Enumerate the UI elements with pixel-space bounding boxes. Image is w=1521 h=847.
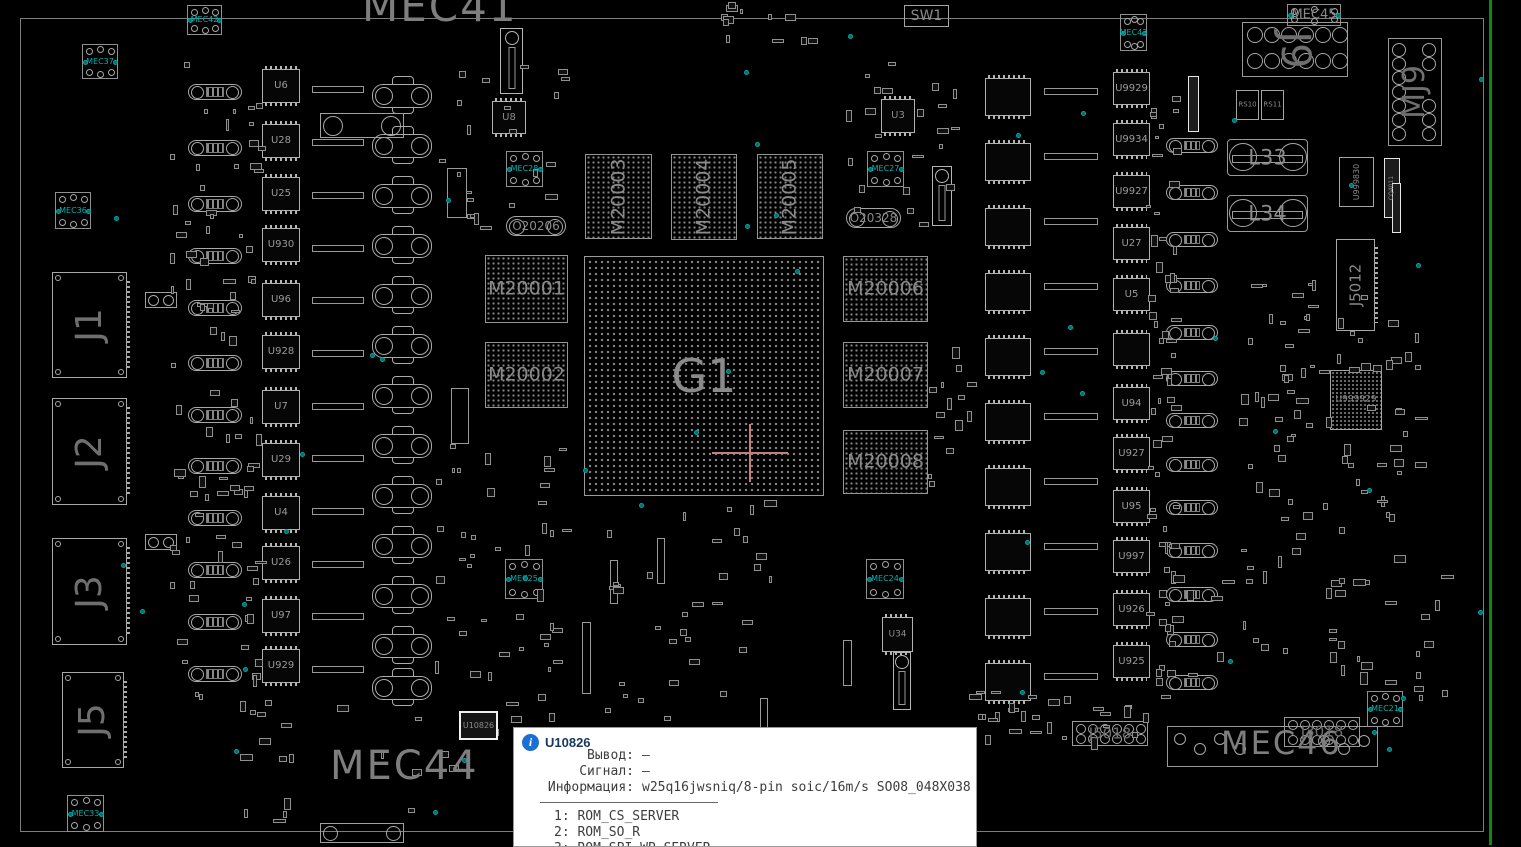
component-power[interactable] bbox=[372, 226, 432, 264]
passive[interactable] bbox=[1253, 638, 1259, 643]
passive[interactable] bbox=[1153, 440, 1161, 448]
passive[interactable] bbox=[1154, 321, 1158, 328]
passive[interactable] bbox=[740, 9, 743, 14]
passive[interactable] bbox=[487, 488, 495, 497]
passive[interactable] bbox=[1155, 136, 1159, 139]
passive[interactable] bbox=[1303, 512, 1313, 519]
passive[interactable] bbox=[1269, 489, 1280, 497]
component-G1[interactable]: G1 bbox=[584, 256, 824, 496]
component-U929[interactable]: U929 bbox=[262, 649, 300, 683]
component-bar[interactable] bbox=[1044, 348, 1098, 355]
passive[interactable] bbox=[221, 332, 225, 342]
component-power[interactable] bbox=[372, 276, 432, 314]
passive[interactable] bbox=[1047, 722, 1052, 734]
passive[interactable] bbox=[1173, 246, 1177, 255]
component-L33[interactable]: L33 bbox=[1227, 139, 1308, 176]
passive[interactable] bbox=[249, 140, 259, 147]
component-bar[interactable] bbox=[1044, 608, 1098, 615]
passive[interactable] bbox=[452, 468, 455, 473]
component-vertical[interactable] bbox=[582, 622, 591, 694]
passive[interactable] bbox=[265, 700, 272, 706]
passive[interactable] bbox=[1275, 417, 1283, 422]
component-J2[interactable]: J2 bbox=[52, 398, 127, 505]
passive[interactable] bbox=[281, 723, 292, 728]
component-U7[interactable]: U7 bbox=[262, 390, 300, 424]
component-U997[interactable]: U997 bbox=[1113, 540, 1150, 573]
passive[interactable] bbox=[210, 390, 219, 396]
passive[interactable] bbox=[253, 578, 258, 585]
passive[interactable] bbox=[250, 710, 256, 715]
passive[interactable] bbox=[253, 675, 257, 687]
passive[interactable] bbox=[785, 14, 796, 21]
passive[interactable] bbox=[1211, 596, 1223, 602]
passive[interactable] bbox=[1361, 363, 1371, 371]
component-RS10[interactable]: RS10 bbox=[1236, 90, 1259, 120]
passive[interactable] bbox=[199, 476, 206, 489]
passive[interactable] bbox=[1291, 434, 1296, 437]
passive[interactable] bbox=[190, 581, 195, 589]
component-bar[interactable] bbox=[312, 192, 364, 199]
passive[interactable] bbox=[1261, 397, 1266, 407]
passive[interactable] bbox=[436, 576, 445, 584]
passive[interactable] bbox=[917, 109, 924, 117]
passive[interactable] bbox=[726, 35, 730, 43]
passive[interactable] bbox=[1093, 707, 1105, 711]
passive[interactable] bbox=[171, 363, 175, 368]
passive[interactable] bbox=[969, 694, 982, 700]
passive[interactable] bbox=[218, 551, 222, 563]
passive[interactable] bbox=[247, 614, 254, 625]
passive[interactable] bbox=[176, 405, 182, 415]
passive[interactable] bbox=[1165, 542, 1169, 554]
passive[interactable] bbox=[1187, 590, 1194, 600]
passive[interactable] bbox=[1341, 665, 1346, 676]
passive[interactable] bbox=[231, 310, 240, 314]
component-ic[interactable] bbox=[985, 78, 1031, 116]
component-ic[interactable] bbox=[985, 468, 1031, 506]
passive[interactable] bbox=[1292, 548, 1300, 554]
passive[interactable] bbox=[538, 694, 546, 701]
passive[interactable] bbox=[991, 691, 1001, 694]
passive[interactable] bbox=[719, 573, 728, 580]
passive[interactable] bbox=[1294, 410, 1301, 419]
passive[interactable] bbox=[482, 78, 489, 83]
passive[interactable] bbox=[1100, 712, 1111, 716]
passive[interactable] bbox=[683, 512, 686, 521]
passive[interactable] bbox=[1373, 365, 1382, 372]
passive[interactable] bbox=[1147, 514, 1157, 518]
component-capsule[interactable] bbox=[1166, 457, 1218, 472]
passive[interactable] bbox=[941, 382, 944, 389]
component-U999830[interactable]: U999830 bbox=[1339, 157, 1374, 207]
component-U29[interactable]: U29 bbox=[262, 443, 300, 477]
passive[interactable] bbox=[1274, 445, 1280, 452]
passive[interactable] bbox=[247, 566, 258, 571]
passive[interactable] bbox=[888, 62, 896, 66]
passive[interactable] bbox=[1415, 365, 1421, 370]
passive[interactable] bbox=[226, 434, 230, 443]
passive[interactable] bbox=[750, 505, 754, 515]
passive[interactable] bbox=[226, 119, 229, 132]
passive[interactable] bbox=[488, 672, 492, 681]
passive[interactable] bbox=[447, 617, 455, 621]
passive[interactable] bbox=[1405, 352, 1412, 362]
passive[interactable] bbox=[562, 529, 572, 532]
passive[interactable] bbox=[217, 491, 229, 495]
passive[interactable] bbox=[509, 203, 515, 208]
component-L34[interactable]: L34 bbox=[1227, 195, 1308, 232]
passive[interactable] bbox=[1159, 237, 1166, 241]
board-canvas[interactable]: MEC41MEC44MEC46G1M20001M20002M20003M2000… bbox=[0, 0, 1521, 845]
passive[interactable] bbox=[875, 134, 882, 139]
passive[interactable] bbox=[764, 500, 777, 507]
component-U926[interactable]: U926 bbox=[1113, 593, 1150, 626]
passive[interactable] bbox=[1255, 392, 1259, 402]
component-ic[interactable] bbox=[985, 403, 1031, 441]
passive[interactable] bbox=[210, 214, 214, 218]
passive[interactable] bbox=[1414, 686, 1424, 691]
component-MEC28[interactable]: MEC28 bbox=[506, 151, 543, 187]
passive[interactable] bbox=[1167, 670, 1176, 677]
passive[interactable] bbox=[186, 279, 190, 290]
passive[interactable] bbox=[176, 232, 187, 238]
passive[interactable] bbox=[467, 564, 472, 568]
passive[interactable] bbox=[1283, 648, 1287, 654]
passive[interactable] bbox=[540, 483, 551, 488]
component-capsule[interactable] bbox=[188, 300, 242, 316]
passive[interactable] bbox=[1385, 680, 1397, 685]
passive[interactable] bbox=[230, 292, 237, 300]
passive[interactable] bbox=[471, 535, 475, 540]
component-capsule[interactable] bbox=[1166, 413, 1218, 428]
passive[interactable] bbox=[1348, 463, 1354, 467]
passive[interactable] bbox=[544, 468, 555, 471]
passive[interactable] bbox=[1421, 614, 1430, 620]
passive[interactable] bbox=[279, 756, 287, 763]
passive[interactable] bbox=[1442, 690, 1447, 698]
passive[interactable] bbox=[1028, 695, 1037, 698]
component-U9929[interactable]: U9929 bbox=[1113, 72, 1150, 105]
passive[interactable] bbox=[903, 187, 909, 195]
passive[interactable] bbox=[1337, 354, 1341, 365]
component-capsule[interactable] bbox=[188, 84, 242, 100]
passive[interactable] bbox=[1148, 295, 1156, 302]
passive[interactable] bbox=[561, 77, 570, 81]
passive[interactable] bbox=[235, 434, 241, 439]
component-bar[interactable] bbox=[312, 297, 364, 304]
passive[interactable] bbox=[273, 819, 286, 823]
passive[interactable] bbox=[1312, 280, 1316, 291]
passive[interactable] bbox=[865, 74, 870, 79]
component-U95[interactable]: U95 bbox=[1113, 490, 1150, 523]
component-pad-pair[interactable] bbox=[145, 292, 177, 308]
passive[interactable] bbox=[1173, 575, 1185, 583]
passive[interactable] bbox=[1173, 148, 1182, 155]
passive[interactable] bbox=[232, 542, 241, 548]
passive[interactable] bbox=[723, 19, 730, 26]
component-capsule[interactable] bbox=[1166, 232, 1218, 247]
component-vertical[interactable] bbox=[657, 538, 665, 584]
passive[interactable] bbox=[540, 634, 551, 640]
passive[interactable] bbox=[519, 647, 524, 652]
passive[interactable] bbox=[1167, 397, 1176, 403]
passive[interactable] bbox=[1424, 641, 1434, 648]
passive[interactable] bbox=[289, 754, 293, 763]
component-U928[interactable]: U928 bbox=[262, 335, 300, 369]
component-U3[interactable]: U3 bbox=[881, 99, 915, 133]
passive[interactable] bbox=[1339, 578, 1345, 584]
passive[interactable] bbox=[558, 69, 568, 75]
passive[interactable] bbox=[1153, 375, 1163, 379]
component-vertical[interactable] bbox=[1188, 76, 1199, 132]
passive[interactable] bbox=[545, 194, 558, 201]
component-M20006[interactable]: M20006 bbox=[843, 256, 928, 322]
passive[interactable] bbox=[936, 412, 945, 418]
component-bar[interactable] bbox=[1044, 478, 1098, 485]
passive[interactable] bbox=[210, 327, 217, 334]
passive[interactable] bbox=[1296, 398, 1308, 404]
component-power[interactable] bbox=[372, 476, 432, 514]
component-MEC42[interactable]: MEC42 bbox=[187, 5, 222, 35]
passive[interactable] bbox=[1143, 713, 1149, 723]
passive[interactable] bbox=[525, 545, 530, 556]
passive[interactable] bbox=[1156, 678, 1163, 686]
passive[interactable] bbox=[1009, 703, 1014, 713]
passive[interactable] bbox=[241, 645, 249, 650]
component-capsule[interactable] bbox=[188, 614, 242, 630]
component-vertical[interactable] bbox=[451, 388, 469, 444]
passive[interactable] bbox=[1150, 508, 1156, 512]
passive[interactable] bbox=[461, 532, 465, 538]
passive[interactable] bbox=[196, 164, 200, 171]
passive[interactable] bbox=[1349, 367, 1360, 373]
passive[interactable] bbox=[1389, 514, 1395, 522]
passive[interactable] bbox=[1263, 571, 1267, 584]
passive[interactable] bbox=[1342, 456, 1348, 464]
passive[interactable] bbox=[1150, 112, 1158, 117]
passive[interactable] bbox=[185, 221, 192, 225]
passive[interactable] bbox=[952, 347, 960, 359]
passive[interactable] bbox=[186, 537, 190, 543]
passive[interactable] bbox=[1296, 533, 1306, 540]
passive[interactable] bbox=[474, 213, 480, 225]
passive[interactable] bbox=[1162, 436, 1173, 442]
component-bar[interactable] bbox=[312, 350, 364, 357]
component-bar[interactable] bbox=[312, 666, 364, 673]
passive[interactable] bbox=[685, 637, 691, 643]
passive[interactable] bbox=[623, 694, 629, 698]
component-bar[interactable] bbox=[312, 403, 364, 410]
passive[interactable] bbox=[190, 491, 197, 497]
passive[interactable] bbox=[907, 208, 914, 214]
passive[interactable] bbox=[1287, 390, 1295, 394]
passive[interactable] bbox=[255, 659, 263, 667]
component-bar[interactable] bbox=[312, 86, 364, 93]
passive[interactable] bbox=[808, 38, 819, 44]
passive[interactable] bbox=[1326, 417, 1332, 428]
component-U6[interactable]: U6 bbox=[262, 69, 300, 103]
component-capsule[interactable] bbox=[1166, 371, 1218, 386]
passive[interactable] bbox=[1284, 375, 1290, 383]
passive[interactable] bbox=[1169, 181, 1180, 188]
passive[interactable] bbox=[205, 494, 209, 500]
passive[interactable] bbox=[244, 486, 254, 491]
passive[interactable] bbox=[177, 639, 188, 645]
passive[interactable] bbox=[743, 536, 748, 543]
passive[interactable] bbox=[255, 561, 267, 564]
component-capsule[interactable] bbox=[188, 562, 242, 578]
passive[interactable] bbox=[1124, 706, 1131, 717]
passive[interactable] bbox=[1248, 464, 1253, 470]
component-ic[interactable] bbox=[985, 208, 1031, 246]
passive[interactable] bbox=[1168, 374, 1173, 380]
passive[interactable] bbox=[692, 602, 704, 607]
passive[interactable] bbox=[1251, 284, 1263, 288]
component-J5[interactable]: J5 bbox=[62, 672, 124, 768]
passive[interactable] bbox=[337, 705, 350, 712]
passive[interactable] bbox=[1357, 656, 1360, 662]
passive[interactable] bbox=[1169, 641, 1176, 647]
passive[interactable] bbox=[250, 163, 262, 171]
component-power[interactable] bbox=[372, 426, 432, 464]
passive[interactable] bbox=[459, 558, 466, 562]
passive[interactable] bbox=[457, 172, 461, 178]
passive[interactable] bbox=[546, 162, 556, 167]
passive[interactable] bbox=[1292, 293, 1304, 297]
passive[interactable] bbox=[938, 104, 947, 108]
passive[interactable] bbox=[195, 513, 205, 517]
passive[interactable] bbox=[457, 468, 461, 474]
component-U5[interactable]: U5 bbox=[1113, 278, 1150, 311]
passive[interactable] bbox=[1326, 588, 1332, 598]
passive[interactable] bbox=[199, 694, 203, 700]
passive[interactable] bbox=[553, 660, 564, 663]
component-U25[interactable]: U25 bbox=[262, 177, 300, 211]
passive[interactable] bbox=[250, 417, 253, 425]
passive[interactable] bbox=[1152, 154, 1163, 158]
passive[interactable] bbox=[408, 808, 415, 814]
passive[interactable] bbox=[865, 108, 876, 115]
component-bar[interactable] bbox=[312, 245, 364, 252]
passive[interactable] bbox=[638, 698, 644, 703]
passive[interactable] bbox=[1239, 418, 1248, 426]
passive[interactable] bbox=[1377, 500, 1388, 504]
passive[interactable] bbox=[256, 103, 263, 109]
component-pad-pair[interactable] bbox=[320, 823, 404, 843]
component-MEC33[interactable]: MEC33 bbox=[67, 795, 104, 832]
passive[interactable] bbox=[436, 479, 442, 485]
passive[interactable] bbox=[439, 159, 446, 163]
component-ic[interactable] bbox=[985, 533, 1031, 571]
passive[interactable] bbox=[1159, 590, 1167, 598]
component-U96[interactable]: U96 bbox=[262, 283, 300, 317]
passive[interactable] bbox=[1170, 273, 1175, 282]
passive[interactable] bbox=[1278, 455, 1286, 461]
component-MEC43[interactable]: MEC43 bbox=[1120, 14, 1147, 51]
component-M20001[interactable]: M20001 bbox=[485, 255, 568, 323]
passive[interactable] bbox=[189, 595, 199, 602]
passive[interactable] bbox=[1246, 579, 1252, 584]
passive[interactable] bbox=[956, 365, 962, 371]
passive[interactable] bbox=[170, 545, 177, 551]
passive[interactable] bbox=[186, 251, 197, 258]
passive[interactable] bbox=[1032, 715, 1040, 720]
passive[interactable] bbox=[669, 680, 679, 686]
passive[interactable] bbox=[1306, 314, 1310, 321]
passive[interactable] bbox=[459, 631, 467, 636]
passive[interactable] bbox=[1261, 644, 1268, 651]
component-bar[interactable] bbox=[1044, 153, 1098, 160]
passive[interactable] bbox=[200, 304, 205, 311]
component-pad-pair[interactable] bbox=[320, 113, 404, 138]
component-O20328[interactable]: O20328 bbox=[846, 208, 901, 228]
component-bar[interactable] bbox=[312, 455, 364, 462]
passive[interactable] bbox=[544, 643, 550, 647]
passive[interactable] bbox=[1319, 370, 1330, 374]
passive[interactable] bbox=[1367, 405, 1375, 411]
passive[interactable] bbox=[1268, 394, 1279, 401]
passive[interactable] bbox=[467, 198, 474, 202]
passive[interactable] bbox=[509, 129, 517, 134]
component-ic[interactable] bbox=[985, 338, 1031, 376]
passive[interactable] bbox=[929, 387, 937, 393]
passive[interactable] bbox=[1288, 499, 1293, 505]
passive[interactable] bbox=[953, 89, 957, 99]
passive[interactable] bbox=[283, 811, 287, 818]
component-U9927[interactable]: U9927 bbox=[1113, 175, 1150, 208]
passive[interactable] bbox=[929, 481, 935, 487]
component-U930[interactable]: U930 bbox=[262, 228, 300, 262]
passive[interactable] bbox=[174, 469, 187, 476]
passive[interactable] bbox=[1166, 339, 1177, 344]
passive[interactable] bbox=[607, 530, 612, 538]
component-bar[interactable] bbox=[1044, 543, 1098, 550]
passive[interactable] bbox=[549, 713, 555, 722]
passive[interactable] bbox=[859, 185, 865, 193]
passive[interactable] bbox=[742, 620, 753, 624]
passive[interactable] bbox=[251, 279, 256, 284]
passive[interactable] bbox=[928, 474, 932, 479]
passive[interactable] bbox=[768, 14, 772, 20]
passive[interactable] bbox=[664, 716, 671, 722]
passive[interactable] bbox=[1048, 699, 1061, 706]
passive[interactable] bbox=[647, 572, 652, 579]
passive[interactable] bbox=[1435, 600, 1440, 611]
component-ic[interactable] bbox=[1113, 333, 1150, 366]
passive[interactable] bbox=[466, 191, 472, 194]
component-U925[interactable]: U925 bbox=[1113, 645, 1150, 678]
passive[interactable] bbox=[1298, 329, 1310, 332]
passive[interactable] bbox=[939, 144, 943, 149]
passive[interactable] bbox=[559, 448, 567, 451]
passive[interactable] bbox=[613, 582, 619, 586]
passive[interactable] bbox=[1415, 462, 1427, 468]
component-power[interactable] bbox=[372, 576, 432, 614]
passive[interactable] bbox=[720, 691, 727, 697]
passive[interactable] bbox=[682, 612, 688, 618]
component-power[interactable] bbox=[372, 176, 432, 214]
passive[interactable] bbox=[1395, 409, 1405, 415]
passive[interactable] bbox=[1173, 109, 1180, 113]
passive[interactable] bbox=[1149, 312, 1157, 320]
passive[interactable] bbox=[248, 106, 255, 110]
passive[interactable] bbox=[1159, 619, 1167, 626]
passive[interactable] bbox=[207, 303, 214, 309]
component-capsule[interactable] bbox=[1166, 675, 1218, 690]
passive[interactable] bbox=[1030, 731, 1042, 734]
passive[interactable] bbox=[284, 798, 292, 809]
passive[interactable] bbox=[772, 39, 784, 43]
